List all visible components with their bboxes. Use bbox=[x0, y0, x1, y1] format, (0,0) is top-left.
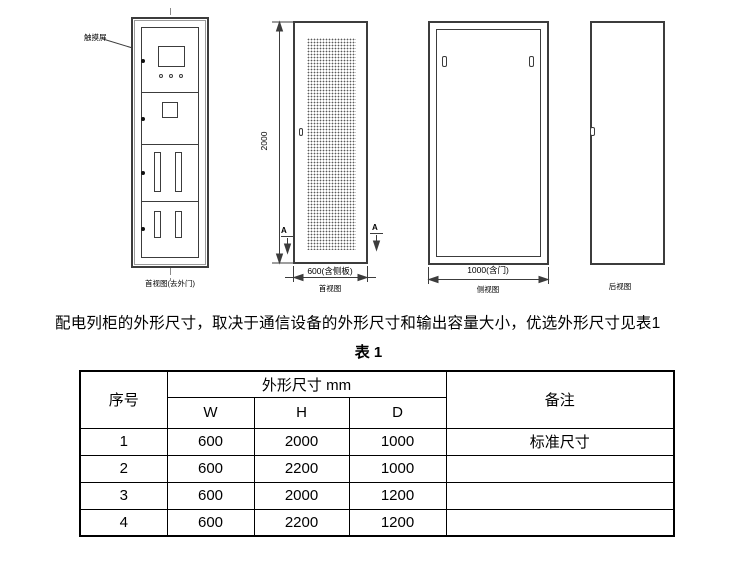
section-marker-a-left-label: A bbox=[281, 226, 287, 235]
table-row: 1 600 2000 1000 标准尺寸 bbox=[80, 428, 674, 455]
header-remark: 备注 bbox=[446, 371, 674, 428]
document-page: 触摸屏 首视图(去外门) 2000 600(含侧板) A A 首视图 1000(… bbox=[0, 0, 737, 565]
cell-h: 2200 bbox=[254, 509, 349, 536]
header-index: 序号 bbox=[80, 371, 167, 428]
table-row: 2 600 2200 1000 bbox=[80, 455, 674, 482]
header-dims-group: 外形尺寸 mm bbox=[167, 371, 446, 397]
table-row: 3 600 2000 1200 bbox=[80, 482, 674, 509]
table-row: 4 600 2200 1200 bbox=[80, 509, 674, 536]
cell-remark bbox=[446, 509, 674, 536]
rear-view-caption: 后视图 bbox=[595, 281, 645, 292]
vent-slot bbox=[154, 211, 161, 238]
indicator-lamp bbox=[179, 74, 183, 78]
header-h: H bbox=[254, 397, 349, 428]
touchscreen-label: 触摸屏 bbox=[84, 32, 107, 43]
header-d: D bbox=[349, 397, 446, 428]
side-panel-inner-frame bbox=[436, 29, 541, 257]
cell-remark bbox=[446, 455, 674, 482]
touchscreen-rect bbox=[158, 46, 185, 67]
cell-w: 600 bbox=[167, 455, 254, 482]
depth-dimension-label: 1000(含门) bbox=[448, 264, 528, 276]
rear-door-handle bbox=[590, 127, 595, 136]
panel-divider bbox=[142, 144, 198, 145]
front-view-drawing bbox=[293, 21, 368, 264]
cell-w: 600 bbox=[167, 428, 254, 455]
side-view-drawing bbox=[428, 21, 549, 265]
vent-slot bbox=[175, 152, 182, 192]
cell-index: 2 bbox=[80, 455, 167, 482]
dimensions-table: 序号 外形尺寸 mm 备注 W H D 1 600 2000 1000 标准尺寸… bbox=[79, 370, 675, 537]
width-dimension-label: 600(含侧板) bbox=[290, 265, 370, 277]
hinge-dot bbox=[141, 59, 145, 63]
vent-slot bbox=[154, 152, 161, 192]
front-view-no-door-caption: 首视图(去外门) bbox=[125, 278, 215, 289]
cell-h: 2200 bbox=[254, 455, 349, 482]
hinge-dot bbox=[141, 227, 145, 231]
cell-d: 1000 bbox=[349, 455, 446, 482]
indicator-lamp bbox=[169, 74, 173, 78]
side-view-caption: 侧视图 bbox=[463, 284, 513, 295]
cell-remark: 标准尺寸 bbox=[446, 428, 674, 455]
section-cut-marker-right bbox=[370, 234, 383, 251]
cell-remark bbox=[446, 482, 674, 509]
indicator-lamp bbox=[159, 74, 163, 78]
cabinet-panel bbox=[141, 27, 199, 258]
table-title: 表 1 bbox=[0, 341, 737, 362]
lifting-slot bbox=[529, 56, 534, 67]
door-handle bbox=[299, 128, 303, 136]
panel-divider bbox=[142, 201, 198, 202]
cell-w: 600 bbox=[167, 509, 254, 536]
hinge-dot bbox=[141, 117, 145, 121]
meter-window bbox=[162, 102, 178, 118]
cell-index: 1 bbox=[80, 428, 167, 455]
cell-d: 1000 bbox=[349, 428, 446, 455]
vent-slot bbox=[175, 211, 182, 238]
hinge-dot bbox=[141, 171, 145, 175]
cell-index: 4 bbox=[80, 509, 167, 536]
cell-d: 1200 bbox=[349, 509, 446, 536]
cell-w: 600 bbox=[167, 482, 254, 509]
cell-h: 2000 bbox=[254, 482, 349, 509]
lifting-slot bbox=[442, 56, 447, 67]
front-view-caption: 首视图 bbox=[305, 283, 355, 294]
height-dimension-label: 2000 bbox=[259, 123, 271, 159]
section-marker-a-right-label: A bbox=[372, 223, 378, 232]
cell-d: 1200 bbox=[349, 482, 446, 509]
cell-h: 2000 bbox=[254, 428, 349, 455]
body-paragraph: 配电列柜的外形尺寸，取决于通信设备的外形尺寸和输出容量大小，优选外形尺寸见表1 bbox=[55, 311, 727, 333]
header-w: W bbox=[167, 397, 254, 428]
cell-index: 3 bbox=[80, 482, 167, 509]
rear-view-drawing bbox=[590, 21, 665, 265]
perforation-grid bbox=[307, 38, 356, 250]
panel-divider bbox=[142, 92, 198, 93]
front-view-no-door-drawing bbox=[131, 17, 209, 268]
table-header-row: 序号 外形尺寸 mm 备注 bbox=[80, 371, 674, 397]
